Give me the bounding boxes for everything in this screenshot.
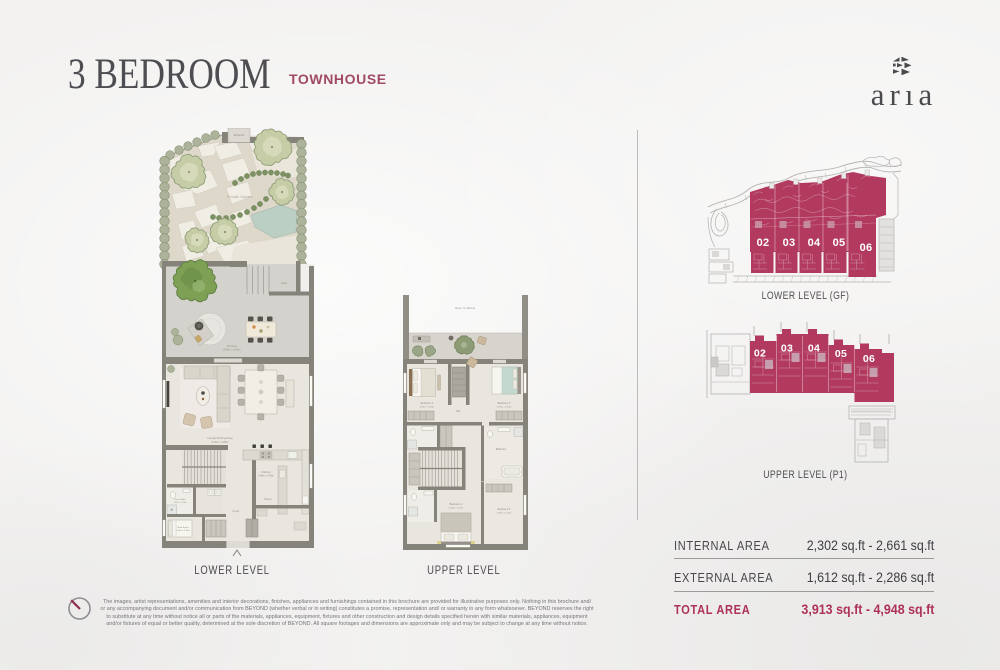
svg-text:Bedroom 1: Bedroom 1: [421, 401, 434, 405]
svg-text:04: 04: [808, 343, 820, 355]
svg-text:04: 04: [808, 237, 821, 249]
svg-text:06: 06: [863, 353, 875, 365]
svg-text:4.26m x 4.04m: 4.26m x 4.04m: [449, 507, 464, 509]
svg-text:02: 02: [757, 237, 770, 249]
svg-text:Bedroom 4: Bedroom 4: [498, 507, 511, 511]
svg-text:arıa: arıa: [871, 77, 937, 110]
svg-text:3.48m x 4.35m: 3.48m x 4.35m: [258, 474, 274, 477]
svg-text:4.09m x 3.90m: 4.09m x 3.90m: [420, 406, 435, 408]
svg-text:8.06m x 5.09m: 8.06m x 5.09m: [223, 348, 240, 352]
svg-text:Guest Bath: Guest Bath: [175, 498, 187, 501]
svg-text:06: 06: [860, 242, 873, 254]
svg-text:03: 03: [783, 237, 796, 249]
svg-text:Maid Room: Maid Room: [177, 527, 188, 529]
svg-text:Stairs: Stairs: [281, 282, 288, 285]
svg-text:Bedroom 2: Bedroom 2: [498, 401, 511, 405]
svg-text:Bathroom: Bathroom: [496, 448, 506, 451]
svg-text:3.50m x 3.90m: 3.50m x 3.90m: [497, 406, 512, 408]
svg-text:Open To Below: Open To Below: [455, 306, 476, 310]
svg-text:2.06m x 2.64m: 2.06m x 2.64m: [176, 530, 190, 532]
svg-text:Foyer: Foyer: [233, 509, 240, 513]
svg-text:02: 02: [754, 348, 766, 360]
svg-text:Terrace: Terrace: [227, 344, 237, 348]
svg-text:3.73m x 4.04m: 3.73m x 4.04m: [497, 512, 512, 514]
svg-text:Hall: Hall: [456, 410, 461, 413]
svg-text:05: 05: [835, 348, 847, 360]
svg-text:Entrance: Entrance: [234, 133, 245, 137]
svg-text:Living/ Dining Area: Living/ Dining Area: [207, 436, 232, 440]
svg-text:Private Garden: Private Garden: [227, 195, 253, 199]
svg-text:Bedroom 3: Bedroom 3: [450, 502, 463, 506]
svg-text:03: 03: [781, 343, 793, 355]
svg-text:Pantry: Pantry: [264, 497, 272, 501]
svg-text:1.68m x 2.30m: 1.68m x 2.30m: [173, 502, 187, 504]
svg-text:05: 05: [833, 237, 846, 249]
svg-text:Kitchen: Kitchen: [261, 470, 271, 474]
svg-text:8.39m x 4.85m: 8.39m x 4.85m: [211, 440, 228, 444]
